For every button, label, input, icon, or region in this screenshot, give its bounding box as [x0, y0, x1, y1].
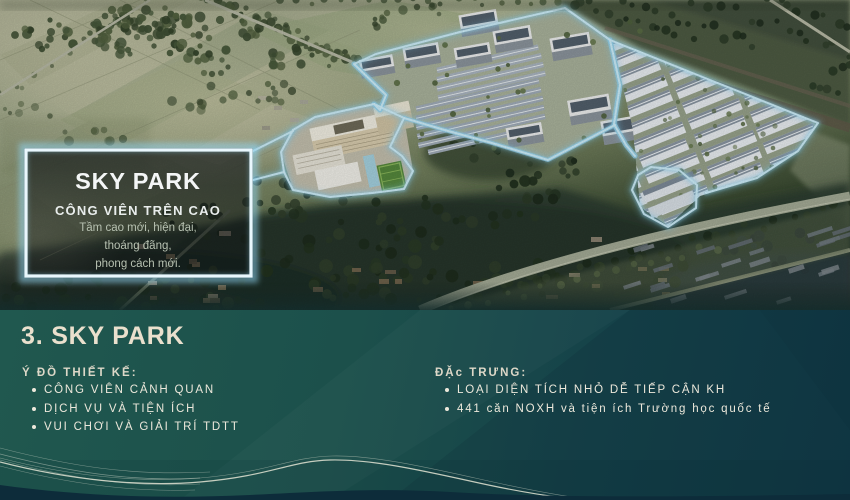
svg-text:thoáng đãng,: thoáng đãng, — [104, 240, 171, 252]
svg-text:Tầm cao mới, hiện đại,: Tầm cao mới, hiện đại, — [79, 222, 196, 234]
svg-text:SKY PARK: SKY PARK — [75, 168, 201, 194]
svg-text:CÔNG VIÊN TRÊN CAO: CÔNG VIÊN TRÊN CAO — [55, 203, 221, 218]
svg-text:phong cách mới.: phong cách mới. — [95, 258, 181, 270]
